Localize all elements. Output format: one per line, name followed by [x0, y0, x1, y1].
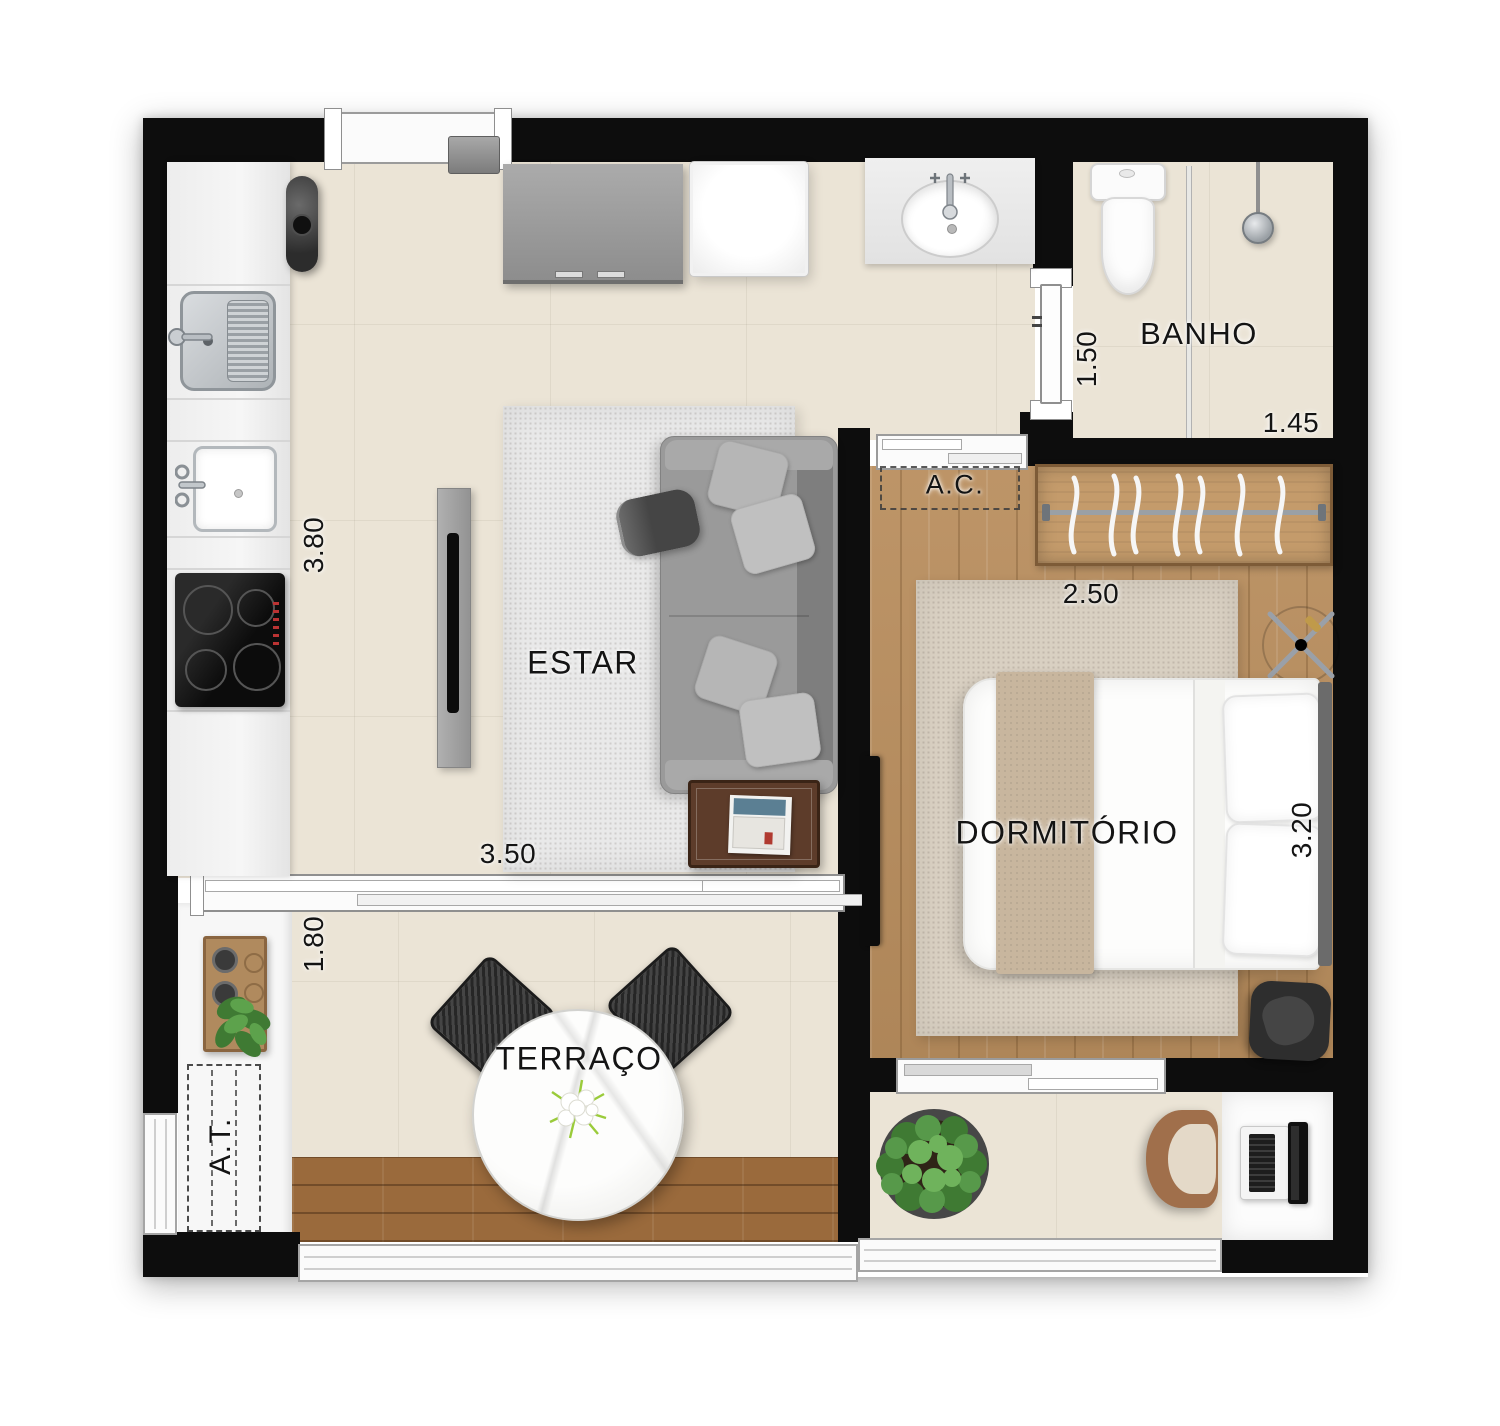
wall-bottom-left-corner [143, 1232, 300, 1277]
bedroom-tv-icon [862, 756, 880, 946]
sliding-panel [948, 453, 1022, 464]
shelf-plant-icon [196, 978, 296, 1078]
entry-door-jamb-left [324, 108, 342, 170]
basin-faucet-icon [920, 168, 980, 224]
wall-bedroom-balcony-right [1163, 1058, 1333, 1092]
balcony-railing [858, 1238, 1222, 1272]
kitchen-faucet-icon [168, 326, 216, 348]
service-area-louver [143, 1113, 177, 1235]
laptop-icon [1240, 1126, 1290, 1200]
decor-vase [286, 176, 318, 272]
cabinet-handle-icon [597, 271, 625, 278]
door-handle-icon [1032, 324, 1042, 327]
flush-button-icon [1119, 169, 1135, 178]
sliding-panel [205, 880, 705, 892]
bowl-icon [244, 953, 264, 973]
wall-right [1333, 118, 1368, 1273]
room-label-banho: BANHO [1140, 316, 1258, 352]
sliding-panel [882, 439, 962, 450]
burner-icon [237, 589, 275, 627]
toilet-bowl [1101, 197, 1155, 295]
laundry-faucet-icon [175, 462, 215, 510]
cup-icon [212, 947, 238, 973]
room-label-terraco: TERRAÇO [496, 1041, 663, 1078]
room-label-dormitorio: DORMITÓRIO [956, 815, 1179, 852]
toilet [1090, 163, 1166, 297]
door-handle-icon [1032, 316, 1042, 319]
office-chair [1146, 1110, 1218, 1208]
entry-cabinet [503, 164, 683, 284]
window-pane [904, 1064, 1032, 1076]
magazine [728, 795, 792, 855]
potted-plant-icon [862, 1088, 1012, 1238]
terrace-railing [298, 1244, 858, 1282]
laptop-screen-icon [1288, 1122, 1308, 1204]
wardrobe-hangers-icon [1040, 466, 1328, 564]
bathroom-door-leaf [1040, 284, 1062, 404]
floor-plan-page: { "plan": { "type": "apartment-floor-pla… [0, 0, 1500, 1426]
zone-label-ac: A.C. [926, 470, 985, 501]
wall-bathroom-bedroom [1062, 438, 1333, 466]
ceiling-fan-icon [1256, 600, 1346, 690]
sink-drain-icon [234, 489, 243, 498]
armchair [1248, 980, 1332, 1062]
sliding-door-jamb [190, 870, 204, 916]
sliding-panel [702, 880, 840, 892]
sink-drainboard [227, 300, 269, 382]
wall-bottom-right [1222, 1240, 1368, 1273]
burner-icon [185, 649, 227, 691]
cabinet-handle-icon [555, 271, 583, 278]
terrace-sliding-door [195, 874, 845, 912]
dim-estar-depth: 3.80 [298, 517, 330, 574]
cooktop-controls [273, 601, 279, 645]
door-closer-icon [448, 136, 500, 174]
flower-centerpiece-icon [540, 1072, 614, 1146]
burner-icon [183, 585, 233, 635]
wall-hall-bathroom [1033, 152, 1073, 286]
dim-estar-width: 3.50 [480, 838, 537, 870]
zone-label-at: A.T. [204, 1117, 238, 1175]
refrigerator [690, 162, 808, 276]
glass-partition [1186, 166, 1192, 438]
tv-icon [447, 533, 459, 713]
dim-banho-width: 1.45 [1263, 407, 1320, 439]
wall-bedroom-balcony-left [870, 1058, 898, 1092]
bedroom-sliding-door [876, 434, 1028, 470]
wall-top-main [508, 118, 1368, 162]
dim-dormitorio-depth: 3.20 [1286, 802, 1318, 859]
dim-banho-depth: 1.50 [1071, 331, 1103, 388]
drain-icon [947, 224, 957, 234]
laptop-keyboard [1249, 1134, 1275, 1192]
sofa-pillow [738, 691, 823, 769]
headboard [1318, 682, 1332, 966]
burner-icon [233, 643, 281, 691]
sliding-panel [357, 894, 877, 906]
cooktop [175, 573, 285, 707]
window-pane [1028, 1078, 1158, 1090]
room-label-estar: ESTAR [527, 645, 639, 682]
dim-terraco-depth: 1.80 [298, 916, 330, 973]
side-table [688, 780, 820, 868]
dim-dormitorio-width: 2.50 [1063, 578, 1120, 610]
shower-head-icon [1242, 212, 1274, 244]
